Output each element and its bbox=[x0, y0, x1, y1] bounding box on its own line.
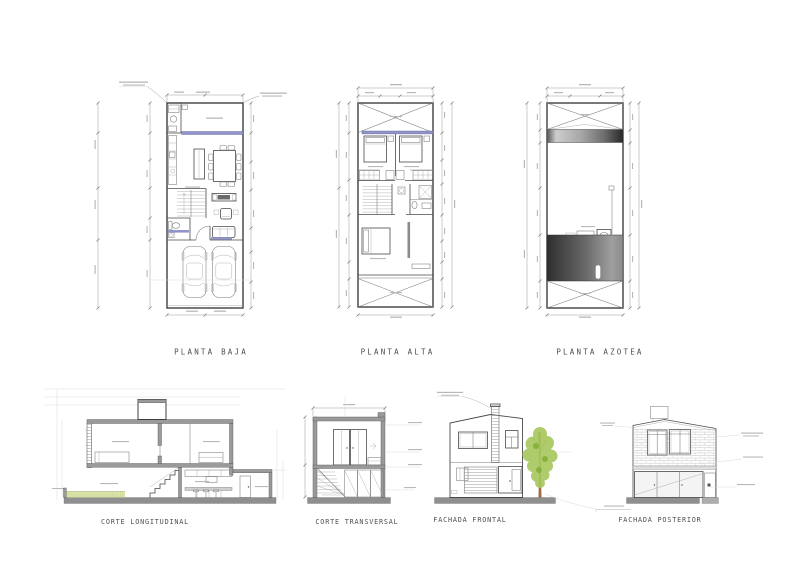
floor-band bbox=[633, 466, 716, 469]
architectural-drawing-canvas: PLANTA BAJA bbox=[0, 0, 790, 566]
section-ground-2 bbox=[308, 498, 391, 504]
planta-baja-lobby-band bbox=[182, 132, 244, 135]
corte-longitudinal-label: CORTE LONGITUDINAL bbox=[101, 518, 189, 526]
upper-room-doors bbox=[334, 430, 382, 466]
lower-room-closets bbox=[345, 470, 384, 497]
tree bbox=[523, 427, 558, 498]
section-structure bbox=[85, 400, 286, 498]
sloped-roof-main bbox=[547, 235, 623, 281]
tree-foliage bbox=[523, 427, 558, 488]
planta-alta-plan: PLANTA ALTA bbox=[336, 84, 455, 357]
rear-glass-doors bbox=[635, 472, 716, 498]
facade-annotations bbox=[437, 392, 492, 409]
drawing-sheet: PLANTA BAJA bbox=[0, 0, 790, 566]
entry-step-band bbox=[168, 230, 189, 233]
sloped-roof-band bbox=[547, 130, 623, 143]
facade-wall-hatched bbox=[87, 423, 92, 468]
section-kitchen bbox=[185, 470, 232, 498]
planta-baja-plan: PLANTA BAJA bbox=[95, 82, 288, 357]
roof-vent bbox=[596, 265, 601, 279]
stairs-section bbox=[317, 468, 345, 497]
garage-door bbox=[465, 467, 498, 493]
planta-alta-label: PLANTA ALTA bbox=[361, 348, 435, 357]
fachada-posterior-elevation: FACHADA POSTERIOR bbox=[600, 407, 763, 525]
elevation-ground-3 bbox=[702, 498, 719, 504]
planta-azotea-label: PLANTA AZOTEA bbox=[556, 348, 643, 357]
chimney bbox=[491, 404, 501, 463]
corte-longitudinal-section: CORTE LONGITUDINAL bbox=[44, 389, 286, 526]
corte-transversal-label: CORTE TRANSVERSAL bbox=[315, 518, 398, 526]
roof-edge bbox=[633, 420, 716, 429]
corte-transversal-section: CORTE TRANSVERSAL bbox=[304, 396, 423, 526]
tv-unit bbox=[218, 195, 231, 200]
garden-wall bbox=[64, 488, 67, 498]
elevation-ground-2 bbox=[627, 498, 700, 504]
planta-azotea-plan: PLANTA AZOTEA bbox=[524, 84, 644, 357]
elevation-ground bbox=[435, 498, 556, 504]
section-ground bbox=[64, 498, 276, 504]
fachada-posterior-label: FACHADA POSTERIOR bbox=[618, 516, 701, 524]
tv-wall bbox=[408, 222, 411, 258]
fachada-frontal-label: FACHADA FRONTAL bbox=[433, 516, 506, 524]
fachada-frontal-elevation: FACHADA FRONTAL bbox=[433, 392, 631, 524]
garden-strip bbox=[52, 488, 125, 498]
water-tank bbox=[651, 407, 669, 419]
door-threshold-band bbox=[211, 237, 232, 239]
planta-alta-band bbox=[362, 131, 433, 134]
planta-baja-label: PLANTA BAJA bbox=[174, 348, 248, 357]
